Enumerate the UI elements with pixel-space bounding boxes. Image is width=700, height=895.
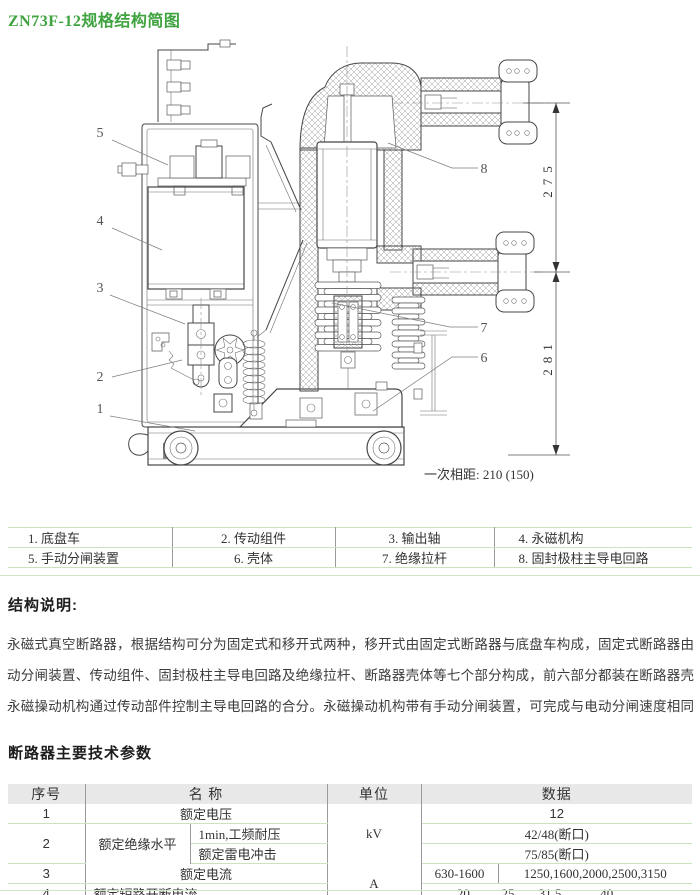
part-label-4: 4 <box>97 214 104 229</box>
embedded-pole <box>300 60 537 415</box>
legend-cell: 3. 输出轴 <box>335 528 494 548</box>
legend-row: 5. 手动分闸装置 6. 壳体 7. 绝缘拉杆 8. 固封极柱主导电回路 <box>8 548 692 568</box>
side-bracket <box>414 331 447 415</box>
divider-rule <box>0 575 700 576</box>
legend-cell: 8. 固封极柱主导电回路 <box>494 548 692 568</box>
legend-cell: 7. 绝缘拉杆 <box>335 548 494 568</box>
param-value: 630-1600 <box>421 864 498 884</box>
legend-cell: 5. 手动分闸装置 <box>8 548 172 568</box>
structure-drawing: 275 281 5 4 3 2 1 8 7 6 一次相距: 210 (150) <box>0 0 700 500</box>
param-name: 额定绝缘水平 <box>85 824 190 864</box>
part-label-7: 7 <box>481 321 488 336</box>
param-name: 额定电流 <box>85 864 327 884</box>
wheel-right <box>367 431 401 465</box>
transmission-mechanism <box>152 104 307 416</box>
param-no: 3 <box>8 864 85 884</box>
part-label-3: 3 <box>97 281 104 296</box>
legend-cell: 1. 底盘车 <box>8 528 172 548</box>
upper-terminal <box>421 60 537 144</box>
param-no: 1 <box>8 804 85 824</box>
structure-heading: 结构说明: <box>8 594 78 615</box>
magnet-actuator <box>147 187 253 305</box>
structure-paragraph: 永磁式真空断路器，根据结构可分为固定式和移开式两种，移开式由固定式断路器与底盘车… <box>7 629 694 722</box>
params-header-data: 数据 <box>421 784 692 804</box>
pole-skirt <box>392 297 425 369</box>
parts-legend-table: 1. 底盘车 2. 传动组件 3. 输出轴 4. 永磁机构 5. 手动分闸装置 … <box>8 527 692 568</box>
param-subname: 额定雷电冲击 <box>190 844 327 864</box>
legend-row: 1. 底盘车 2. 传动组件 3. 输出轴 4. 永磁机构 <box>8 528 692 548</box>
dimension-upper: 275 <box>540 160 555 198</box>
insulating-pull-rod <box>315 282 381 389</box>
legend-cell: 6. 壳体 <box>172 548 335 568</box>
paragraph-line: 永磁式真空断路器，根据结构可分为固定式和移开式两种，移开式由固定式断路器与底盘车… <box>7 629 694 660</box>
params-header-name: 名 称 <box>85 784 327 804</box>
param-no: 2 <box>8 824 85 864</box>
param-value: 42/48(断口) <box>421 824 692 844</box>
param-name: 额定电压 <box>85 804 327 824</box>
params-header-no: 序号 <box>8 784 85 804</box>
wheel-left <box>164 431 198 465</box>
part-label-8: 8 <box>481 162 488 177</box>
params-header-row: 序号 名 称 单位 数据 <box>8 784 692 804</box>
part-label-1: 1 <box>97 402 104 417</box>
datasheet-page: ZN73F-12规格结构简图 <box>0 0 700 895</box>
param-unit: kV <box>327 804 421 864</box>
shell-bottom-frame <box>240 382 402 427</box>
params-heading: 断路器主要技术参数 <box>8 742 152 763</box>
part-label-5: 5 <box>97 126 104 141</box>
divider-rule <box>0 890 700 891</box>
param-value: 12 <box>421 804 692 824</box>
param-subname: 1min,工频耐压 <box>190 824 327 844</box>
params-row: 1 额定电压 kV 12 <box>8 804 692 824</box>
dimension-lower: 281 <box>540 338 555 376</box>
part-label-6: 6 <box>481 351 488 366</box>
phase-distance-caption: 一次相距: 210 (150) <box>424 467 534 482</box>
params-row: 3 额定电流 A 630-1600 1250,1600,2000,2500,31… <box>8 864 692 884</box>
chassis-truck <box>129 427 404 465</box>
trip-latch <box>152 333 169 351</box>
post-bolts <box>167 40 230 115</box>
part-label-2: 2 <box>97 370 104 385</box>
param-value: 75/85(断口) <box>421 844 692 864</box>
param-value: 1250,1600,2000,2500,3150 <box>498 864 692 884</box>
paragraph-line: 动分闸装置、传动组件、固封极柱主导电回路及绝缘拉杆、断路器壳体等七个部分构成，前… <box>7 660 694 691</box>
paragraph-line: 永磁操动机构通过传动部件控制主导电回路的合分。永磁操动机构带有手动分闸装置，可完… <box>7 691 694 722</box>
legend-cell: 2. 传动组件 <box>172 528 335 548</box>
params-header-unit: 单位 <box>327 784 421 804</box>
legend-cell: 4. 永磁机构 <box>494 528 692 548</box>
tech-params-table: 序号 名 称 单位 数据 1 额定电压 kV 12 2 额定绝缘水平 1min,… <box>8 784 692 895</box>
